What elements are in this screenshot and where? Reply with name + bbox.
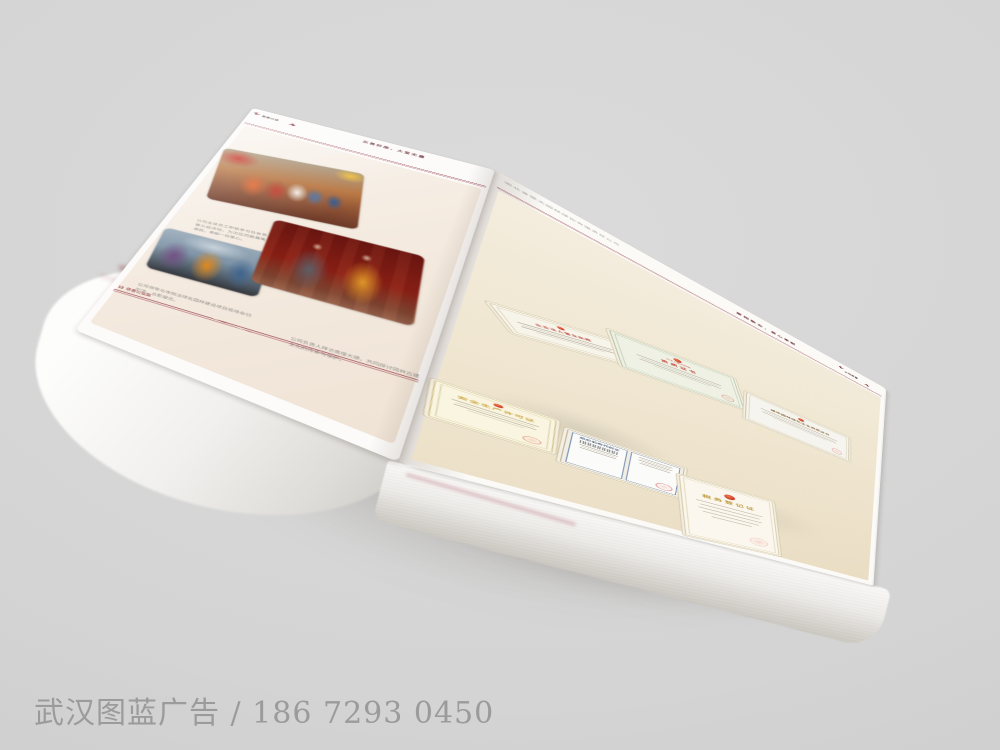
red-seal-stamp xyxy=(721,393,735,403)
left-chapter-badge-label: 慈善公益 xyxy=(261,115,280,122)
badge-arrow-icon xyxy=(253,112,262,116)
red-seal-stamp xyxy=(832,447,842,456)
red-seal-stamp xyxy=(750,536,768,548)
red-seal-stamp xyxy=(655,481,673,492)
badge-arrow-icon xyxy=(288,123,296,127)
red-seal-stamp xyxy=(522,434,542,446)
badge-arrow-icon xyxy=(838,365,844,370)
studio-watermark: 武汉图蓝广告 / 186 7293 0450 xyxy=(34,688,494,732)
brochure-mockup-photo: 湖北省楚天园林绿化有限责任公司 爱岗敬业，爱心奉献 公司荣誉 企业法人营业执照 … xyxy=(0,0,1000,750)
